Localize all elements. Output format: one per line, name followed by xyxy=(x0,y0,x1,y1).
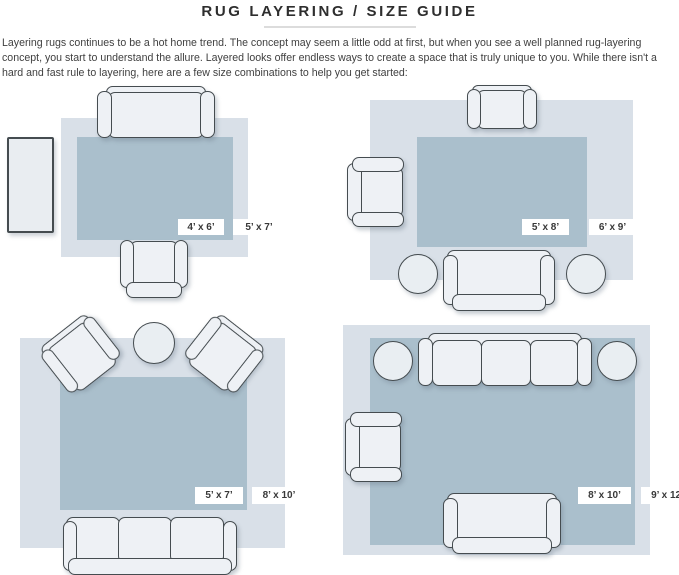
loveseat-back xyxy=(452,537,552,554)
layout4-outer-rug-size-label: 9’ x 12’ xyxy=(641,487,679,504)
rug-size-guide-infographic: RUG LAYERING / SIZE GUIDE Layering rugs … xyxy=(0,0,679,575)
sofa-arm-left xyxy=(418,338,433,386)
loveseat-back xyxy=(452,294,546,311)
armchair-seat xyxy=(477,90,527,129)
armchair-arm-right xyxy=(174,240,188,288)
sofa-cushion-2 xyxy=(481,340,531,386)
layout2-loveseat xyxy=(443,250,555,312)
layout4-sofa xyxy=(418,333,592,388)
armchair-arm-top xyxy=(350,412,402,427)
armchair-arm-bottom xyxy=(350,467,402,482)
layout3-outer-rug-size-label: 8’ x 10’ xyxy=(252,487,306,504)
armchair-arm-bottom xyxy=(352,212,404,227)
layout2-armchair-top xyxy=(467,85,537,129)
layout2-armchair-left xyxy=(347,157,404,227)
layout4-loveseat xyxy=(443,493,561,553)
size-guide-diagram: 4’ x 6’ 5’ x 7’ 5’ x 8’ 6’ x 9’ xyxy=(0,0,679,575)
layout1-armchair xyxy=(120,240,188,298)
layout4-ottoman-left xyxy=(373,341,413,381)
layout3-round-side-table xyxy=(133,322,175,364)
layout2-ottoman-right xyxy=(566,254,606,294)
sofa-back xyxy=(68,558,232,575)
armchair-seat xyxy=(357,422,401,472)
loveseat-seat xyxy=(447,250,551,298)
layout1-inner-rug-size-label: 4’ x 6’ xyxy=(178,219,224,235)
armchair-arm-left xyxy=(120,240,134,288)
layout3-sofa xyxy=(63,517,237,575)
armchair-arm-top xyxy=(352,157,404,172)
sofa-cushion-1 xyxy=(432,340,482,386)
layout1-console-table xyxy=(7,137,54,233)
layout2-ottoman-left xyxy=(398,254,438,294)
sofa-arm-right xyxy=(200,91,215,138)
layout2-outer-rug-size-label: 6’ x 9’ xyxy=(589,219,636,235)
layout1-sofa xyxy=(97,86,215,138)
sofa-cushion-3 xyxy=(170,517,224,563)
sofa-seat xyxy=(108,92,204,138)
armchair-back xyxy=(126,282,182,298)
sofa-arm-right xyxy=(577,338,592,386)
sofa-cushion-3 xyxy=(530,340,578,386)
armchair-seat xyxy=(359,167,403,217)
loveseat-seat xyxy=(447,493,557,541)
layout4-inner-rug-size-label: 8’ x 10’ xyxy=(578,487,631,504)
layout3-inner-rug-size-label: 5’ x 7’ xyxy=(195,487,243,504)
sofa-arm-left xyxy=(97,91,112,138)
armchair-arm-right xyxy=(523,89,537,129)
sofa-cushion-2 xyxy=(118,517,172,563)
layout2-inner-rug-size-label: 5’ x 8’ xyxy=(522,219,569,235)
layout4-ottoman-right xyxy=(597,341,637,381)
armchair-seat xyxy=(130,241,178,285)
layout4-armchair-left xyxy=(345,412,402,482)
armchair-arm-left xyxy=(467,89,481,129)
layout1-outer-rug-size-label: 5’ x 7’ xyxy=(233,219,285,235)
